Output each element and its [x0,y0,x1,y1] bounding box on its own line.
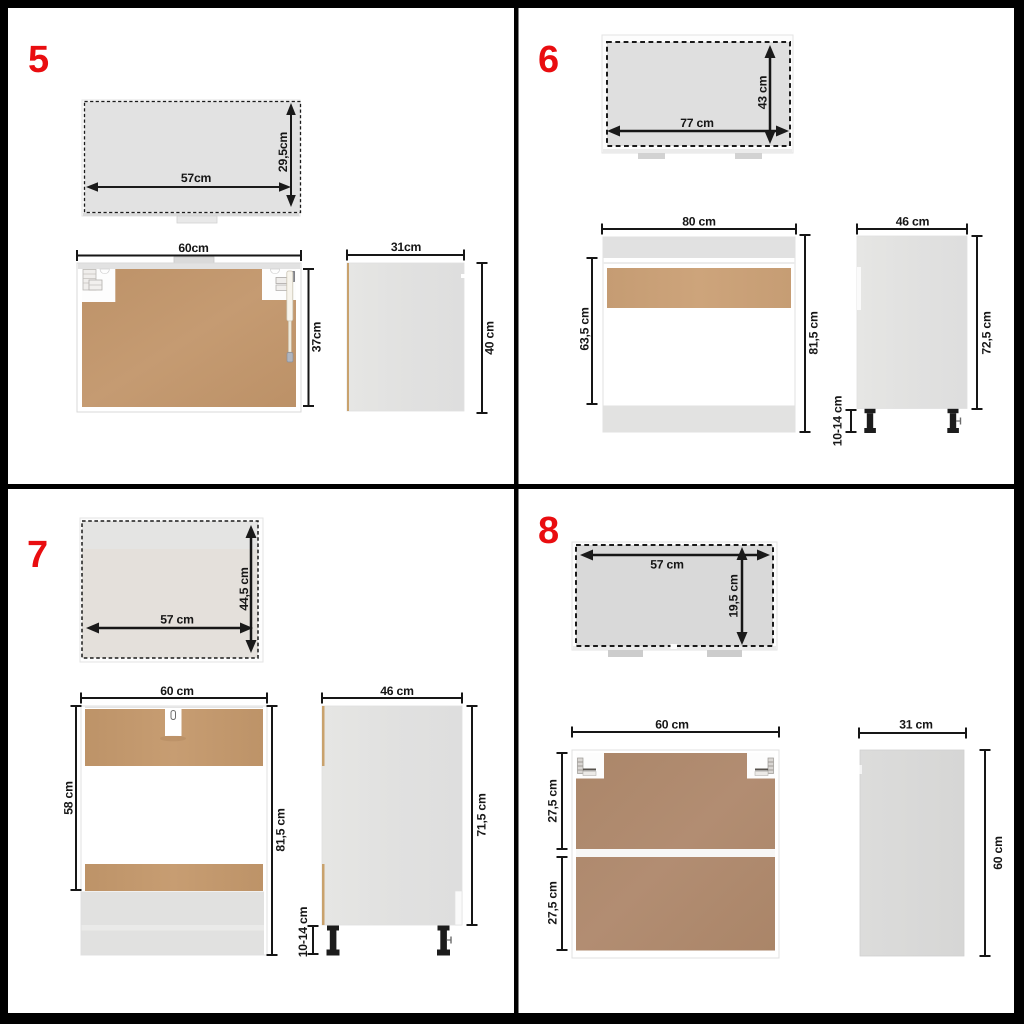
svg-text:40 cm: 40 cm [483,321,497,355]
svg-text:72,5 cm: 72,5 cm [980,311,994,355]
svg-text:57 cm: 57 cm [160,613,194,627]
svg-text:81,5 cm: 81,5 cm [807,311,821,355]
svg-text:27,5 cm: 27,5 cm [546,881,560,925]
svg-text:46 cm: 46 cm [380,684,414,698]
svg-text:44,5 cm: 44,5 cm [237,567,251,611]
svg-text:43 cm: 43 cm [756,75,770,109]
svg-text:60 cm: 60 cm [655,718,689,732]
svg-text:60 cm: 60 cm [991,836,1005,870]
svg-text:29,5cm: 29,5cm [276,132,290,172]
svg-text:80 cm: 80 cm [682,215,716,229]
svg-text:77 cm: 77 cm [680,116,714,130]
svg-text:58 cm: 58 cm [62,781,76,815]
svg-text:31cm: 31cm [391,240,422,254]
svg-text:37cm: 37cm [310,321,324,352]
svg-text:6: 6 [538,39,559,81]
svg-text:71,5 cm: 71,5 cm [475,793,489,837]
svg-text:57 cm: 57 cm [650,558,684,572]
svg-text:27,5 cm: 27,5 cm [546,779,560,823]
svg-text:60 cm: 60 cm [160,684,194,698]
svg-text:60cm: 60cm [178,241,209,255]
svg-text:57cm: 57cm [181,171,212,185]
svg-text:31 cm: 31 cm [899,718,933,732]
svg-text:5: 5 [28,39,49,81]
svg-text:8: 8 [538,510,559,552]
svg-text:19,5 cm: 19,5 cm [727,574,741,618]
svg-text:46 cm: 46 cm [896,215,930,229]
svg-text:81,5 cm: 81,5 cm [274,808,288,852]
svg-text:10-14 cm: 10-14 cm [831,395,845,446]
svg-text:7: 7 [27,534,48,576]
svg-text:63,5 cm: 63,5 cm [578,307,592,351]
svg-text:10-14 cm: 10-14 cm [296,906,310,957]
